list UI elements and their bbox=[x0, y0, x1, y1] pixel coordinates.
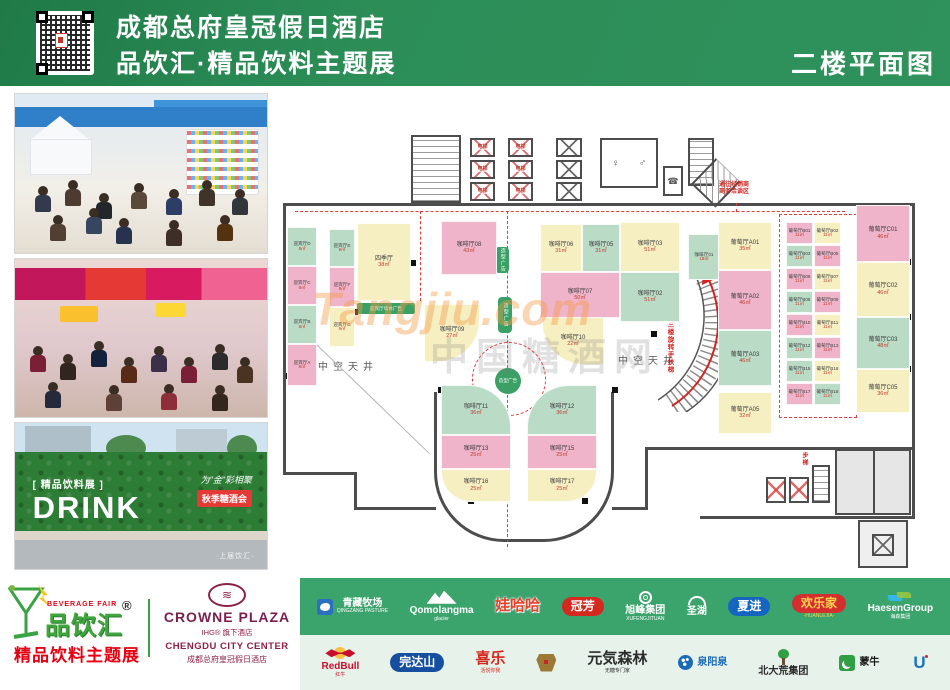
room-area: 25㎡ bbox=[556, 486, 568, 492]
room-name: 葡萄厅C01 bbox=[868, 227, 897, 234]
sponsor-name: 泉阳泉 bbox=[697, 657, 727, 668]
wall bbox=[700, 516, 915, 519]
sponsor-Qomolangma: Qomolangmaglacier bbox=[410, 591, 474, 623]
room-pt-b03: 葡萄厅B0311㎡ bbox=[786, 245, 813, 267]
room-kf05: 咖啡厅0531㎡ bbox=[582, 224, 620, 272]
crowne-plaza-name: CROWNE PLAZA bbox=[158, 609, 296, 625]
room-pt-c02: 葡萄厅C0246㎡ bbox=[856, 262, 910, 317]
wall bbox=[645, 447, 648, 509]
sponsor-row: 青藏牧场QINGZANG PASTURE bbox=[317, 598, 388, 615]
room-pt-b01: 葡萄厅B0111㎡ bbox=[786, 222, 813, 244]
room-area: 51㎡ bbox=[644, 247, 656, 253]
sponsor-subtext: 活悦你我 bbox=[480, 669, 500, 675]
dotted-path bbox=[295, 211, 845, 212]
gold-crest-icon bbox=[536, 654, 556, 672]
room-area: 25㎡ bbox=[470, 452, 482, 458]
room-siji: 四季厅38㎡ bbox=[357, 223, 411, 301]
wall bbox=[354, 472, 357, 510]
sponsor-gold-crest-icon bbox=[536, 654, 556, 672]
sponsor-subtext: XUFENGJITUAN bbox=[626, 617, 664, 623]
pasture-icon bbox=[317, 599, 333, 615]
room-area: 11㎡ bbox=[795, 348, 804, 353]
sponsor-subtext: 红牛 bbox=[335, 673, 345, 679]
room-kf08: 咖啡厅0843㎡ bbox=[441, 221, 497, 275]
stair-label: 步梯 bbox=[800, 452, 809, 466]
utility-room bbox=[835, 449, 911, 515]
room-area: 46㎡ bbox=[877, 290, 889, 296]
room-area: 11㎡ bbox=[823, 325, 832, 330]
elevator-box bbox=[789, 477, 809, 503]
room-area: 35㎡ bbox=[739, 246, 751, 252]
ihg-line: IHG® 旗下酒店 bbox=[158, 627, 296, 638]
sponsor-name: 娃哈哈 bbox=[495, 598, 540, 615]
room-yb-f: 迎宾厅F9㎡ bbox=[329, 267, 355, 307]
u-icon bbox=[910, 654, 928, 672]
sponsor-name: 喜乐 bbox=[475, 651, 505, 668]
wall bbox=[912, 203, 915, 519]
room-yb-c: 迎宾厅C8㎡ bbox=[287, 266, 317, 305]
sponsor-完达山: 完达山 bbox=[390, 653, 444, 672]
room-pt-b08: 葡萄厅B0811㎡ bbox=[786, 291, 813, 313]
room-area: 27㎡ bbox=[446, 333, 458, 339]
room-area: 31㎡ bbox=[555, 248, 567, 254]
room-yb-b: 迎宾厅B8㎡ bbox=[287, 305, 317, 344]
tree-icon bbox=[776, 649, 790, 665]
room-yb-g: 迎宾厅G9㎡ bbox=[329, 307, 355, 347]
redbull-icon bbox=[325, 646, 355, 660]
sponsor-subtext: 海森集团 bbox=[890, 615, 910, 621]
city-center-line: CHENGDU CITY CENTER bbox=[158, 641, 296, 652]
wall bbox=[283, 203, 286, 475]
room-pt-a05: 葡萄厅A0532㎡ bbox=[718, 392, 772, 434]
female-icon: ♀ bbox=[612, 158, 620, 169]
room-area: 22㎡ bbox=[567, 341, 579, 347]
room-area: 51㎡ bbox=[644, 297, 656, 303]
room-area: 36㎡ bbox=[470, 410, 482, 416]
sponsor-name: Qomolangma bbox=[410, 605, 474, 616]
sponsor-泉阳泉: 泉阳泉 bbox=[678, 655, 727, 670]
restrooms: ♀♂ bbox=[600, 138, 658, 188]
room-pt-b02: 葡萄厅B0211㎡ bbox=[814, 222, 841, 244]
room-area: 48㎡ bbox=[877, 343, 889, 349]
brand-wordmark: 品饮汇 bbox=[45, 606, 123, 642]
sponsor-row: 泉阳泉 bbox=[678, 655, 727, 670]
room-pt-b11: 葡萄厅B1111㎡ bbox=[814, 314, 841, 336]
wall bbox=[283, 472, 357, 475]
room-pt-c01: 葡萄厅C0146㎡ bbox=[856, 205, 910, 262]
poster: 成都总府皇冠假日酒店 品饮汇·精品饮料主题展 二楼平面图 [ 精品饮料展 ] D… bbox=[0, 0, 950, 690]
mountain-icon bbox=[427, 591, 457, 604]
room-pt-b13: 葡萄厅B1311㎡ bbox=[814, 337, 841, 359]
sponsor-北大荒集团: 北大荒集团 bbox=[758, 649, 808, 677]
room-area: 18㎡ bbox=[699, 257, 708, 262]
room-yb-d: 迎宾厅D8㎡ bbox=[287, 227, 317, 266]
sponsor-RedBull: RedBull红牛 bbox=[322, 646, 360, 679]
room-area: 11㎡ bbox=[795, 302, 804, 307]
room-area: 25㎡ bbox=[470, 486, 482, 492]
sponsor-subtext: -HUANLEJIA- bbox=[804, 614, 835, 620]
room-area: 8㎡ bbox=[299, 286, 306, 291]
water-circle-icon bbox=[678, 655, 693, 670]
column bbox=[582, 498, 588, 504]
room-area: 11㎡ bbox=[823, 256, 832, 261]
room-area: 36㎡ bbox=[877, 391, 889, 397]
shape-ad-pill: 造型广告 bbox=[495, 247, 509, 273]
sponsor-夏进: 夏进 bbox=[728, 597, 770, 616]
elevator-box: 电梯 bbox=[508, 160, 533, 179]
sponsor-badge: 欢乐家 bbox=[792, 594, 846, 613]
room-area: 8㎡ bbox=[299, 247, 306, 252]
elevator-box: 电梯 bbox=[470, 182, 495, 201]
registered-mark: ® bbox=[122, 598, 132, 613]
sponsor-name: HaesenGroup bbox=[868, 603, 934, 614]
utility-room bbox=[858, 520, 908, 568]
room-kf13: 咖啡厅1325㎡ bbox=[441, 435, 511, 469]
room-area: 36㎡ bbox=[556, 410, 568, 416]
room-pt-b17: 葡萄厅B1711㎡ bbox=[786, 383, 813, 405]
sponsor-strip-1: 青藏牧场QINGZANG PASTUREQomolangmaglacier娃哈哈… bbox=[300, 578, 950, 635]
wall bbox=[612, 507, 648, 510]
sponsor-喜乐: 喜乐活悦你我 bbox=[475, 651, 505, 674]
room-area: 11㎡ bbox=[823, 394, 832, 399]
room-name: 咖啡厅17 bbox=[550, 479, 575, 486]
room-area: 46㎡ bbox=[877, 234, 889, 240]
sponsor-旭峰集团: 旭峰集团XUFENGJITUAN bbox=[625, 591, 665, 623]
room-kf09: 咖啡厅0927㎡ bbox=[424, 304, 480, 362]
room-area: 9㎡ bbox=[339, 327, 346, 332]
room-area: 11㎡ bbox=[823, 302, 832, 307]
hotel-cn-name: 成都总府皇冠假日酒店 bbox=[158, 654, 296, 665]
sponsor-元気森林: 元気森林无糖专门家 bbox=[587, 651, 647, 674]
sponsor-row: 蒙牛 bbox=[839, 655, 879, 671]
room-area: 11㎡ bbox=[795, 256, 804, 261]
service-elevator-box bbox=[556, 182, 582, 201]
room-area: 31㎡ bbox=[595, 248, 607, 254]
sponsor-娃哈哈: 娃哈哈 bbox=[495, 598, 540, 615]
sponsor-badge: 夏进 bbox=[728, 597, 770, 616]
room-pt-b15: 葡萄厅B1511㎡ bbox=[786, 360, 813, 382]
room-pt-b18: 葡萄厅B1811㎡ bbox=[814, 383, 841, 405]
knot-icon bbox=[639, 591, 652, 604]
room-pt-c03: 葡萄厅C0348㎡ bbox=[856, 317, 910, 369]
service-elevator-box bbox=[556, 160, 582, 179]
room-area: 11㎡ bbox=[823, 233, 832, 238]
leaf-icon bbox=[887, 592, 913, 602]
sponsor-蒙牛: 蒙牛 bbox=[839, 655, 879, 671]
room-area: 11㎡ bbox=[823, 371, 832, 376]
crowne-plaza-block: ≋ CROWNE PLAZA IHG® 旗下酒店 CHENGDU CITY CE… bbox=[158, 583, 296, 665]
sponsor-u-icon bbox=[910, 654, 928, 672]
staircase bbox=[411, 135, 461, 203]
sponsor-青藏牧场: 青藏牧场QINGZANG PASTURE bbox=[317, 598, 388, 615]
room-kf06: 咖啡厅0631㎡ bbox=[540, 224, 582, 272]
room-pt-b10: 葡萄厅B1011㎡ bbox=[786, 314, 813, 336]
divider bbox=[148, 599, 150, 657]
room-area: 8㎡ bbox=[299, 325, 306, 330]
room-kf01: 咖啡厅0118㎡ bbox=[688, 234, 720, 280]
room-kf10: 咖啡厅1022㎡ bbox=[542, 317, 604, 365]
room-pt-b05: 葡萄厅B0511㎡ bbox=[814, 245, 841, 267]
room-area: 11㎡ bbox=[795, 233, 804, 238]
elevator-box: 电梯 bbox=[470, 160, 495, 179]
room-kf15: 咖啡厅1525㎡ bbox=[527, 435, 597, 469]
sponsor-HaesenGroup: HaesenGroup海森集团 bbox=[868, 592, 934, 621]
column bbox=[651, 331, 657, 337]
room-area: 11㎡ bbox=[795, 394, 804, 399]
room-pt-c05: 葡萄厅C0536㎡ bbox=[856, 369, 910, 413]
wall-ad-strip: 迎宾厅墙体广告 bbox=[357, 303, 415, 314]
room-area: 25㎡ bbox=[556, 452, 568, 458]
sponsor-name: 蒙牛 bbox=[859, 657, 879, 668]
room-area: 9㎡ bbox=[339, 248, 346, 253]
staircase bbox=[812, 465, 830, 503]
shape-ad-pill: 造型广告 bbox=[498, 297, 512, 333]
room-name: 葡萄厅C02 bbox=[868, 283, 897, 290]
crowne-plaza-icon: ≋ bbox=[208, 583, 246, 607]
sponsor-strip-2: RedBull红牛完达山喜乐活悦你我元気森林无糖专门家泉阳泉北大荒集团蒙牛 bbox=[300, 635, 950, 690]
phone-booth: ☎ bbox=[663, 166, 683, 196]
elevator-box bbox=[766, 477, 786, 503]
sponsor-name: 旭峰集团 bbox=[625, 605, 665, 616]
room-pt-a02: 葡萄厅A0246㎡ bbox=[718, 270, 772, 330]
room-area: 32㎡ bbox=[739, 413, 751, 419]
room-pt-b09: 葡萄厅B0911㎡ bbox=[814, 291, 841, 313]
room-area: 11㎡ bbox=[795, 279, 804, 284]
sponsor-subtext: 无糖专门家 bbox=[605, 669, 630, 675]
sponsor-冠芳: 冠芳 bbox=[562, 597, 604, 616]
male-icon: ♂ bbox=[639, 158, 647, 169]
room-kf03: 咖啡厅0351㎡ bbox=[620, 222, 680, 272]
room-area: 9㎡ bbox=[339, 287, 346, 292]
sponsor-badge: 冠芳 bbox=[562, 597, 604, 616]
room-area: 43㎡ bbox=[463, 248, 475, 254]
room-yb-a: 迎宾厅A8㎡ bbox=[287, 344, 317, 386]
room-name: 咖啡厅16 bbox=[464, 479, 489, 486]
room-kf07: 咖啡厅0750㎡ bbox=[540, 272, 620, 318]
sponsor-name: 圣湖 bbox=[687, 606, 707, 617]
room-pt-a03: 葡萄厅A0346㎡ bbox=[718, 330, 772, 386]
column bbox=[612, 387, 618, 393]
horns-icon bbox=[688, 596, 706, 605]
sponsor-欢乐家: 欢乐家-HUANLEJIA- bbox=[792, 594, 846, 620]
sponsor-subtext: glacier bbox=[434, 617, 449, 623]
wall bbox=[354, 507, 436, 510]
room-kf02: 咖啡厅0251㎡ bbox=[620, 272, 680, 322]
room-area: 46㎡ bbox=[739, 358, 751, 364]
wall bbox=[283, 203, 915, 206]
elevator-box: 电梯 bbox=[508, 138, 533, 157]
moon-crescent-icon bbox=[839, 655, 855, 671]
room-pt-b06: 葡萄厅B0611㎡ bbox=[786, 268, 813, 290]
room-area: 11㎡ bbox=[823, 279, 832, 284]
footer: BEVERAGE FAIR 品饮汇 ® 精品饮料主题展 ≋ CROWNE PLA… bbox=[0, 573, 950, 690]
sponsor-圣湖: 圣湖 bbox=[687, 596, 707, 617]
room-area: 11㎡ bbox=[795, 371, 804, 376]
room-pt-b12: 葡萄厅B1211㎡ bbox=[786, 337, 813, 359]
dotted-path bbox=[420, 211, 421, 301]
room-area: 38㎡ bbox=[378, 262, 390, 268]
room-yb-e: 迎宾厅E9㎡ bbox=[329, 229, 355, 267]
room-pt-b16: 葡萄厅B1611㎡ bbox=[814, 360, 841, 382]
room-pt-a01: 葡萄厅A0135㎡ bbox=[718, 222, 772, 270]
dotted-path bbox=[736, 203, 737, 212]
room-area: 46㎡ bbox=[739, 300, 751, 306]
sponsor-subtext: QINGZANG PASTURE bbox=[337, 609, 388, 615]
sponsor-name: 北大荒集团 bbox=[758, 666, 808, 677]
atrium-label-left: 中空天井 bbox=[318, 358, 378, 373]
elevator-box: 电梯 bbox=[470, 138, 495, 157]
expo-subtitle: 精品饮料主题展 bbox=[14, 641, 140, 666]
elevator-box: 电梯 bbox=[508, 182, 533, 201]
room-pt-b07: 葡萄厅B0711㎡ bbox=[814, 268, 841, 290]
room-area: 11㎡ bbox=[795, 325, 804, 330]
sponsor-name: RedBull bbox=[322, 661, 360, 672]
to-business-area-label: 通往经销商 商务洽谈区 bbox=[700, 182, 768, 196]
room-area: 50㎡ bbox=[574, 295, 586, 301]
sponsor-badge: 完达山 bbox=[390, 653, 444, 672]
service-elevator-box bbox=[556, 138, 582, 157]
shape-ad-circle: 造型广告 bbox=[495, 368, 521, 394]
room-area: 11㎡ bbox=[823, 348, 832, 353]
room-area: 8㎡ bbox=[299, 365, 306, 370]
sponsor-name: 元気森林 bbox=[587, 651, 647, 668]
